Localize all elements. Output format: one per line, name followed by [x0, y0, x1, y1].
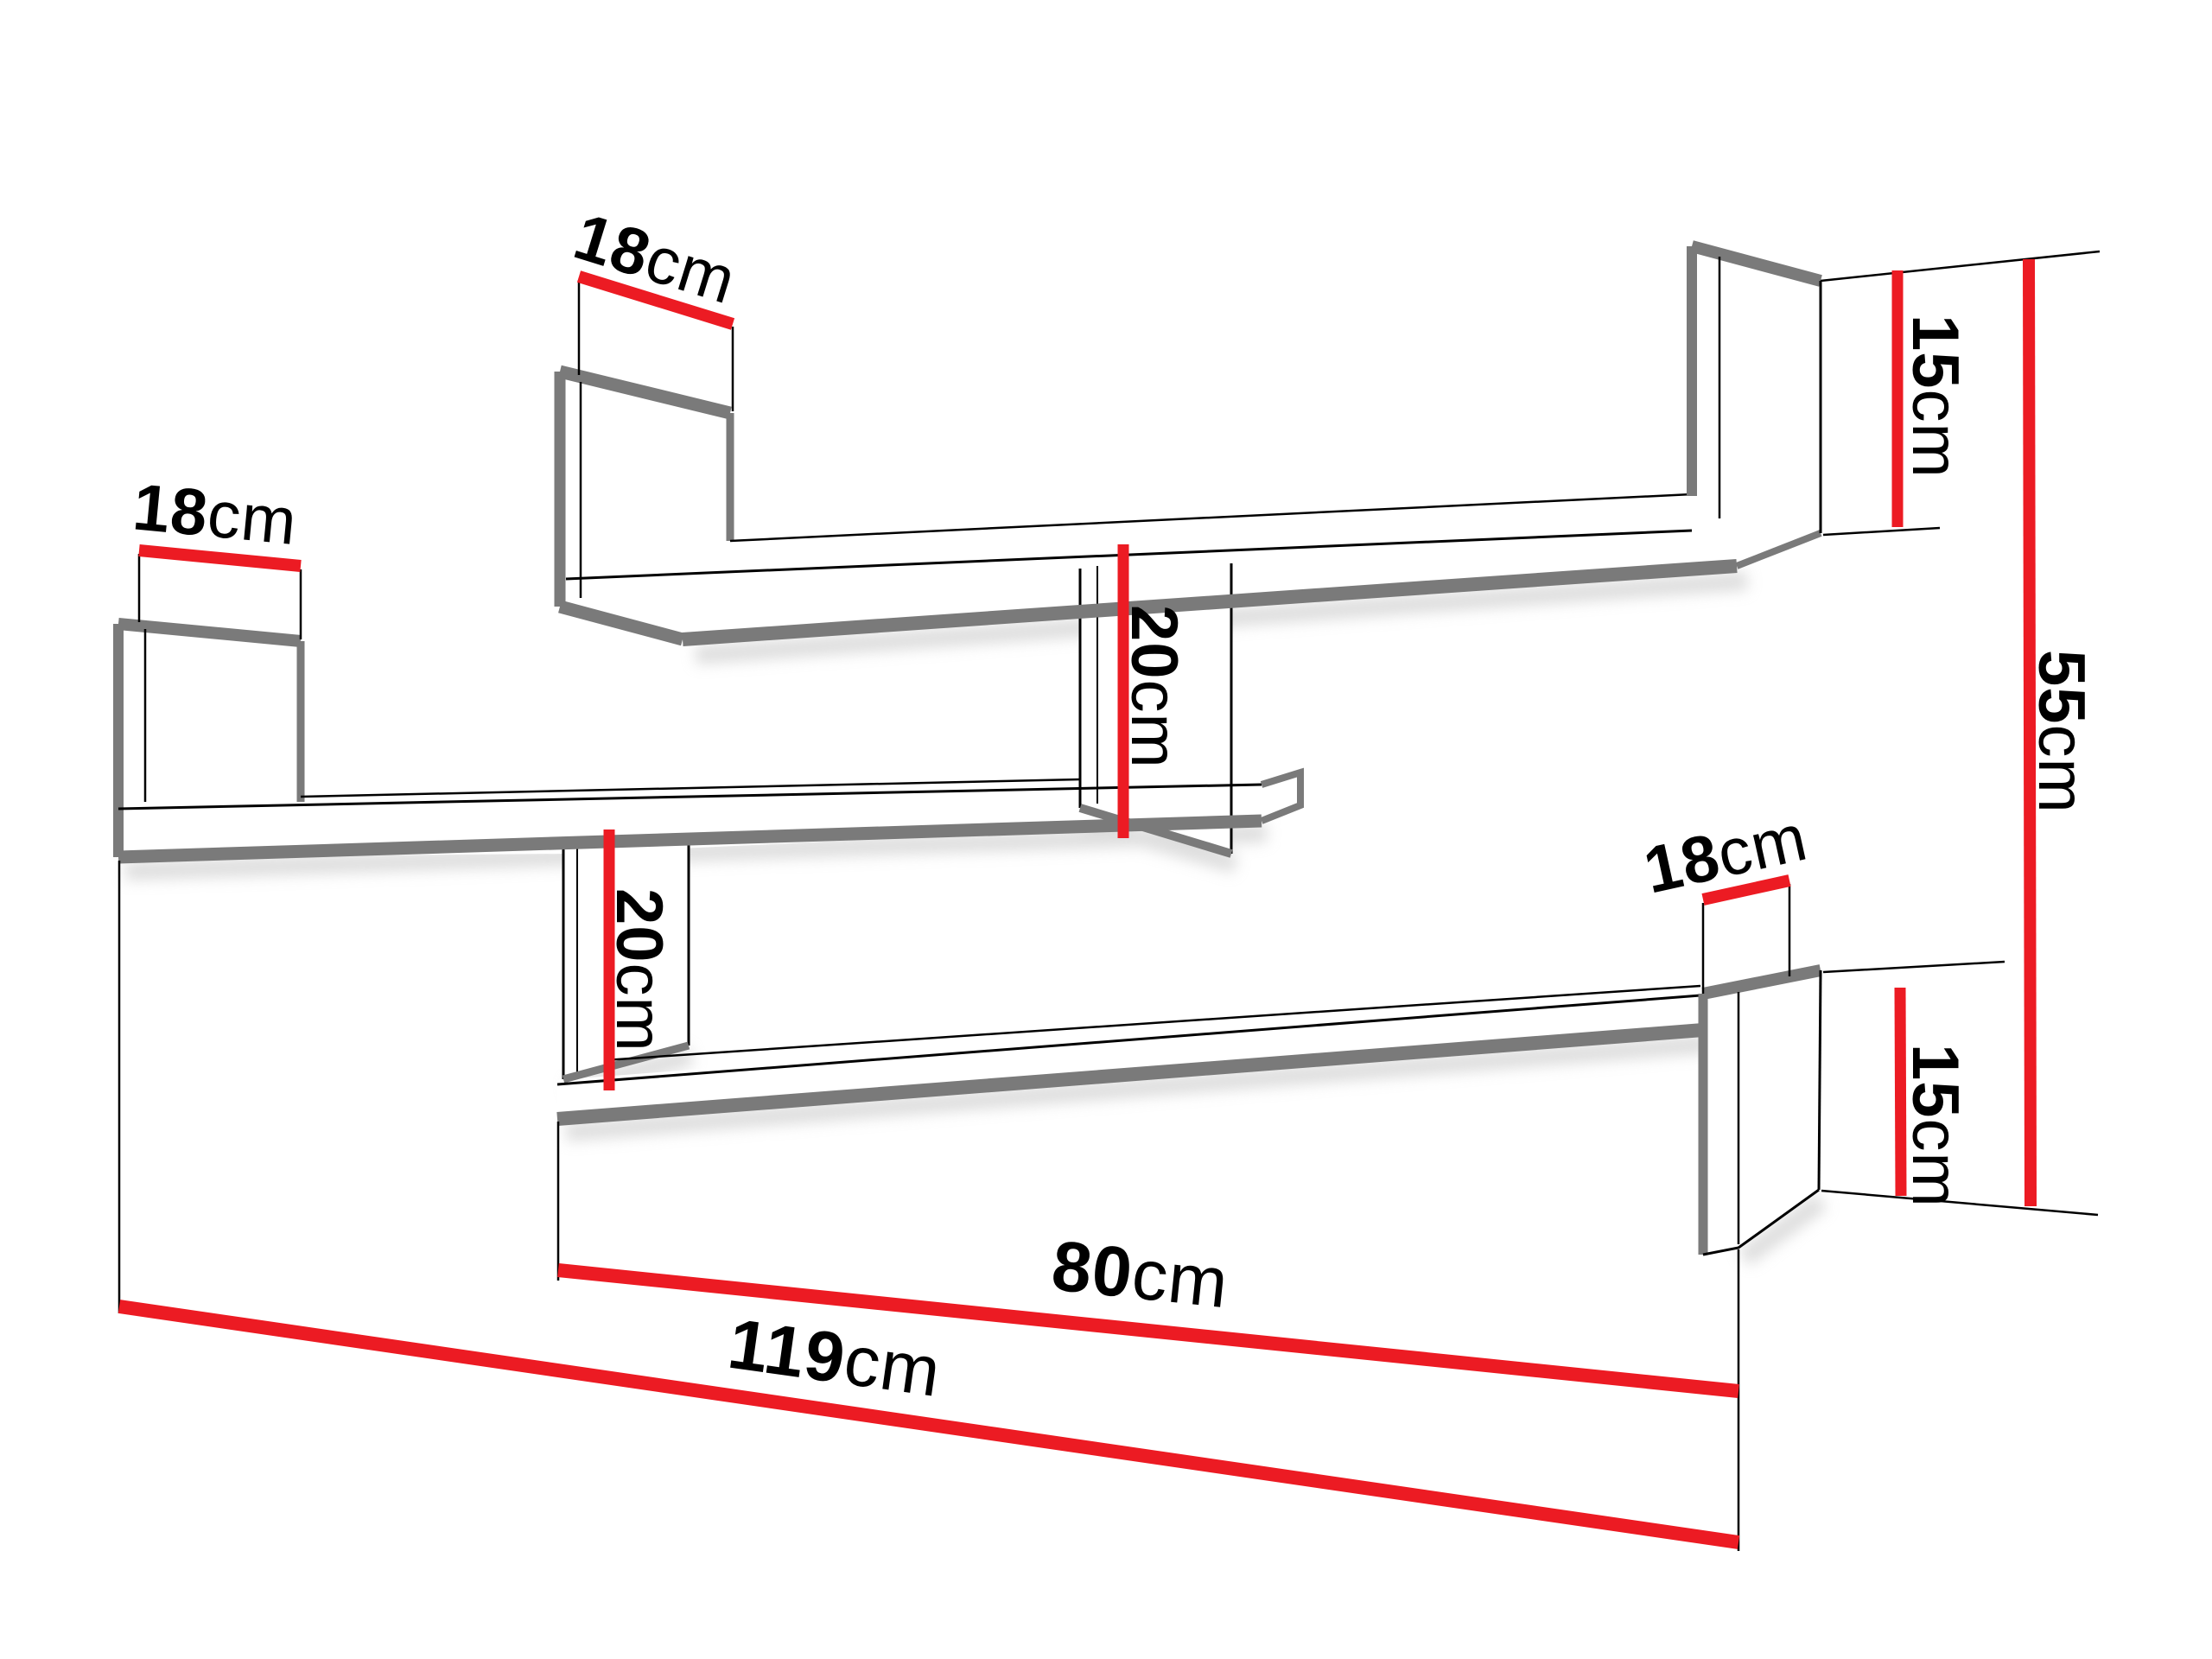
label-total-width-value: 119 [723, 1305, 850, 1399]
label-top-right-height-value: 15 [1898, 315, 1972, 390]
label-lower-divider-height: 20cm [602, 888, 676, 1052]
cast-shadows [125, 581, 1821, 1258]
bottom-right-panel-back-edge [1819, 970, 1821, 1190]
label-bottom-shelf-width: 80cm [1048, 1226, 1232, 1323]
shelf-dimension-diagram: 18cm 18cm 18cm 15cm 15cm 20cm 20cm 55cm … [0, 0, 2212, 1659]
label-bottom-shelf-width-unit: cm [1128, 1235, 1232, 1323]
label-bottom-shelf-width-value: 80 [1048, 1226, 1136, 1313]
diagram-canvas: 18cm 18cm 18cm 15cm 15cm 20cm 20cm 55cm … [0, 0, 2212, 1659]
label-bottom-right-height-unit: cm [1898, 1119, 1972, 1208]
ext-bottom-right-15-top [1823, 962, 2005, 972]
label-middle-left-depth-unit: cm [205, 478, 301, 560]
label-upper-divider-height-value: 20 [1117, 605, 1191, 680]
ext-top-height-shared [1821, 251, 2100, 281]
label-total-width-unit: cm [839, 1321, 945, 1413]
label-lower-divider-height-unit: cm [602, 963, 676, 1052]
label-total-height-unit: cm [2024, 725, 2098, 814]
ext-top-right-15-bottom [1823, 528, 1940, 535]
label-top-right-height: 15cm [1898, 315, 1972, 479]
label-total-height: 55cm [2024, 650, 2098, 814]
label-bottom-right-height-value: 15 [1898, 1044, 1972, 1119]
label-upper-divider-height-unit: cm [1117, 680, 1191, 769]
label-middle-left-depth: 18cm [130, 470, 300, 559]
label-middle-left-depth-value: 18 [130, 470, 211, 550]
label-bottom-right-depth: 18cm [1637, 801, 1814, 908]
label-top-right-height-unit: cm [1898, 390, 1972, 479]
label-bottom-right-height: 15cm [1898, 1044, 1972, 1208]
label-bottom-right-depth-unit: cm [1711, 801, 1814, 892]
label-total-height-value: 55 [2024, 650, 2098, 725]
label-upper-divider-height: 20cm [1117, 605, 1191, 769]
label-lower-divider-height-value: 20 [602, 888, 676, 963]
